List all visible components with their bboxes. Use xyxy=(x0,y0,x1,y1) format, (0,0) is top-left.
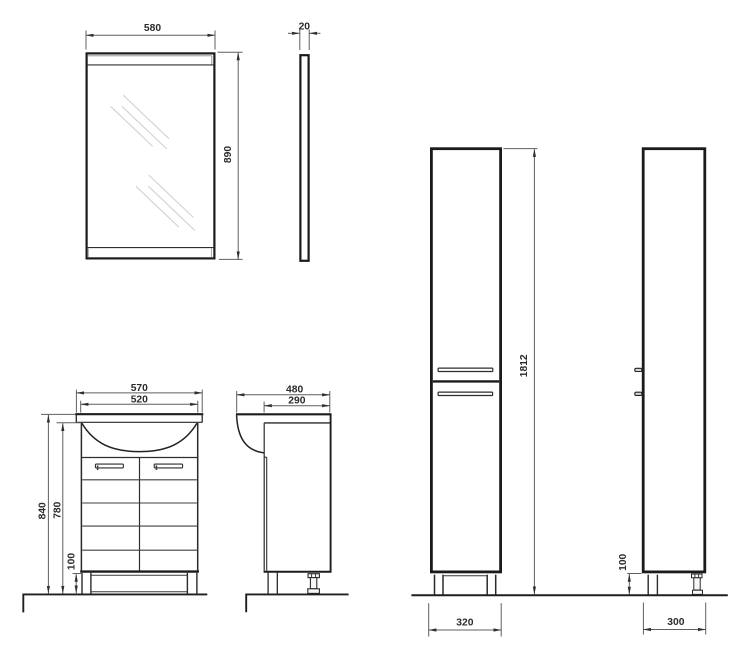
svg-text:1812: 1812 xyxy=(519,354,530,377)
svg-text:100: 100 xyxy=(66,553,77,570)
svg-text:580: 580 xyxy=(144,23,161,34)
svg-text:100: 100 xyxy=(618,553,629,570)
svg-text:20: 20 xyxy=(299,21,311,32)
svg-text:300: 300 xyxy=(667,617,684,628)
svg-text:780: 780 xyxy=(52,501,63,518)
svg-text:520: 520 xyxy=(131,394,148,405)
svg-text:840: 840 xyxy=(38,502,49,519)
svg-text:480: 480 xyxy=(286,385,303,396)
svg-text:290: 290 xyxy=(288,396,305,407)
svg-text:320: 320 xyxy=(456,617,473,628)
svg-text:890: 890 xyxy=(223,146,234,163)
svg-text:570: 570 xyxy=(131,383,148,394)
